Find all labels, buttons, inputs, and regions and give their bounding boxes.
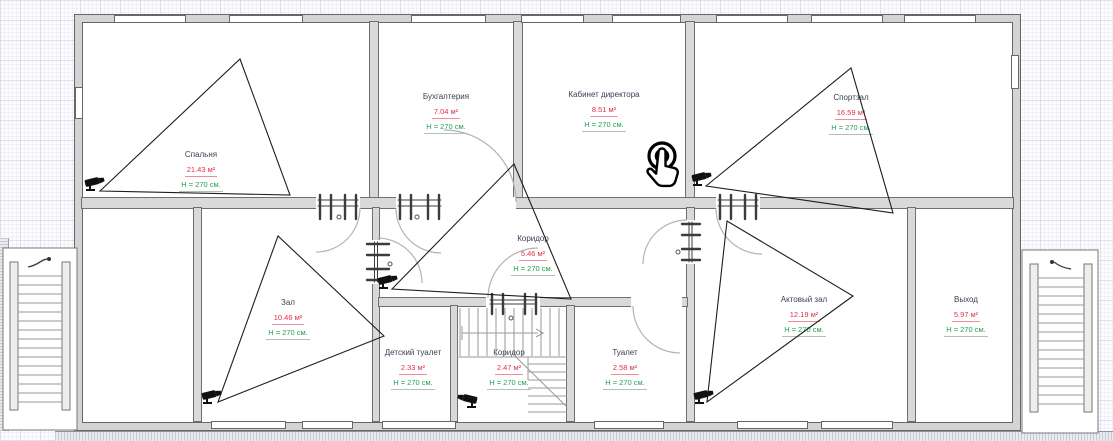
room-koridor-stairs[interactable] — [457, 306, 567, 421]
wall — [567, 306, 574, 421]
room-detskiy-tualet[interactable] — [379, 306, 451, 421]
room-koridor-main[interactable] — [379, 208, 687, 298]
window — [595, 422, 663, 428]
window — [1012, 56, 1018, 88]
wall — [194, 208, 201, 421]
window — [812, 16, 882, 22]
tap-hand-icon[interactable] — [648, 143, 678, 186]
exterior-staircase-left — [3, 248, 77, 430]
wall — [687, 208, 694, 421]
window — [822, 422, 892, 428]
page-edge-left — [0, 238, 9, 431]
window — [717, 16, 787, 22]
room-sportzal[interactable] — [694, 25, 1010, 198]
room-spalnya[interactable] — [85, 25, 370, 198]
wall — [82, 198, 1013, 208]
wall — [379, 298, 687, 306]
window — [522, 16, 583, 22]
window — [383, 422, 455, 428]
wall — [908, 208, 915, 421]
window — [905, 16, 975, 22]
room-aktovyy-zal[interactable] — [694, 208, 908, 421]
page-edge-bottom — [55, 431, 1113, 441]
floor-plan-canvas: Спальня 21.43 м² H = 270 см. Бухгалтерия… — [0, 0, 1113, 441]
stairs-direction-arrow-icon — [28, 257, 51, 267]
wall — [370, 22, 378, 208]
room-vykhod[interactable] — [915, 208, 1010, 421]
stairs-direction-arrow-icon — [1050, 260, 1071, 269]
exterior-staircase-right — [1022, 250, 1098, 433]
wall — [514, 22, 522, 208]
window — [303, 422, 352, 428]
room-unnamed[interactable] — [85, 208, 194, 421]
room-tualet[interactable] — [574, 306, 687, 421]
window — [412, 16, 485, 22]
window — [613, 16, 680, 22]
window — [115, 16, 185, 22]
window — [738, 422, 807, 428]
room-zal[interactable] — [201, 208, 373, 421]
window — [212, 422, 285, 428]
room-bukhgalteriya[interactable] — [378, 25, 514, 198]
window — [230, 16, 302, 22]
window — [76, 88, 82, 118]
